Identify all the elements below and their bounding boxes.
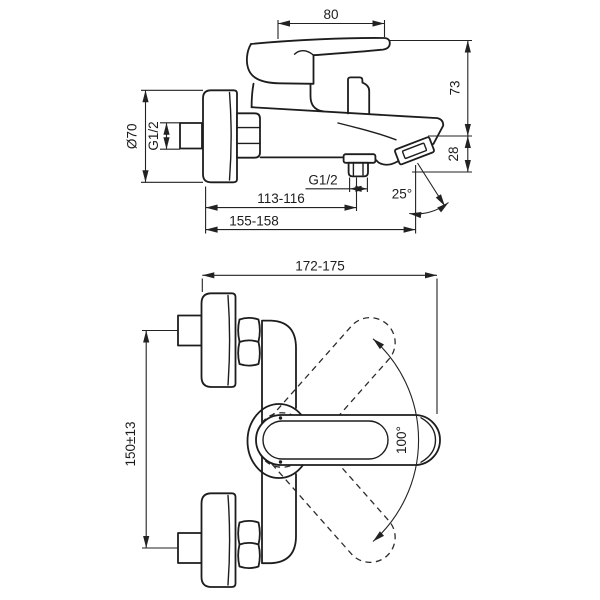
dim-label-wall-to-spout: 155-158 <box>229 214 279 229</box>
dim-label-height-73: 73 <box>447 80 462 95</box>
spout-angle: 25° <box>392 163 449 214</box>
lever-handle-front <box>256 415 440 465</box>
technical-drawing: 80 73 28 Ø70 G1/2 <box>0 0 600 600</box>
top-mounting-nut <box>238 318 260 366</box>
dim-label-inlet-centres: 150±13 <box>123 422 138 467</box>
dim-height-73: 73 <box>390 41 472 137</box>
spout-fold-line <box>338 123 396 140</box>
lever-detail-line <box>295 51 314 55</box>
dim-wall-to-handle: 172-175 <box>202 259 437 415</box>
top-inlet-nipple <box>178 316 202 346</box>
dim-flange-diameter: Ø70 <box>125 90 204 182</box>
dim-label-wall-to-outlet: 113-116 <box>257 191 305 206</box>
spout-tip-underside <box>374 158 397 164</box>
dim-inlet-centres: 150±13 <box>123 331 178 549</box>
dim-label-drop-28: 28 <box>446 146 461 161</box>
bottom-wall-flange <box>202 493 236 587</box>
handle-cap <box>247 44 314 84</box>
top-wall-flange <box>202 293 236 387</box>
bottom-inlet-nipple <box>178 533 202 563</box>
handle-pivot-dot-top <box>279 416 282 419</box>
dim-label-wall-thread: G1/2 <box>146 121 161 150</box>
dim-label-outlet-thread: G1/2 <box>308 173 337 188</box>
front-view: 100° 172-175 150±13 <box>123 259 440 588</box>
dim-label-spout-angle: 25° <box>392 187 412 202</box>
wall-nipple-side <box>180 123 202 149</box>
bottom-mounting-nut <box>238 521 260 568</box>
side-view: 80 73 28 Ø70 G1/2 <box>125 7 473 234</box>
drawing-canvas: 80 73 28 Ø70 G1/2 <box>0 0 600 600</box>
wall-flange-side <box>203 90 237 182</box>
dim-label-wall-to-handle: 172-175 <box>295 259 345 274</box>
top-connector-stub <box>348 77 369 113</box>
dim-handle-length: 80 <box>278 7 385 39</box>
aerator-plate <box>394 137 434 165</box>
mounting-nut-side <box>237 113 260 157</box>
dim-wall-thread: G1/2 <box>146 121 180 150</box>
dim-label-swing-angle: 100° <box>394 426 409 454</box>
handle-pivot-dot-bottom <box>279 460 282 463</box>
spout-jet-line <box>418 163 445 206</box>
hose-outlet-stub <box>344 154 376 176</box>
dim-label-flange-diameter: Ø70 <box>125 124 140 150</box>
dim-label-handle-length: 80 <box>323 7 338 22</box>
